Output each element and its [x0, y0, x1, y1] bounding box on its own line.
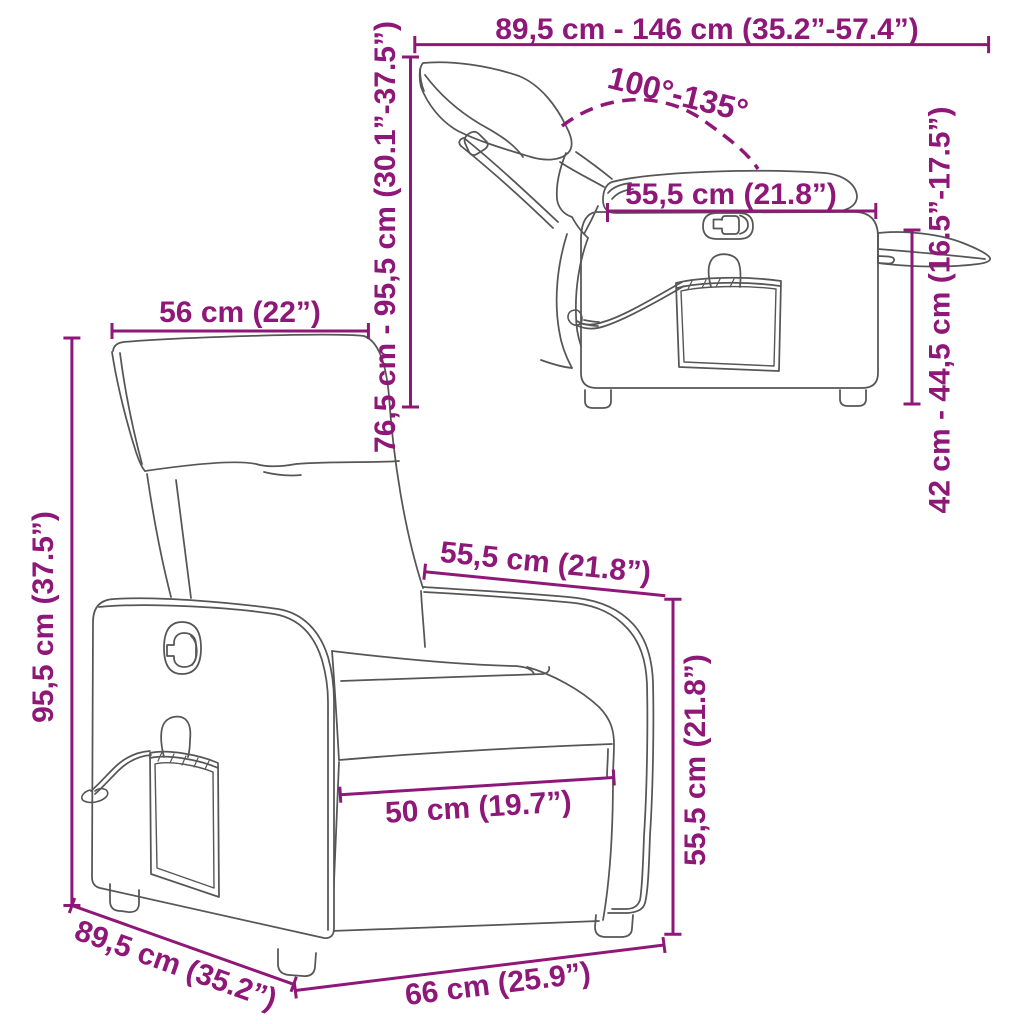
svg-text:95,5 cm (37.5”): 95,5 cm (37.5”)	[27, 511, 60, 723]
svg-text:42 cm - 44,5 cm (16.5”-17.5”): 42 cm - 44,5 cm (16.5”-17.5”)	[924, 107, 957, 514]
svg-text:56 cm (22”): 56 cm (22”)	[159, 296, 321, 329]
svg-text:55,5 cm (21.8”): 55,5 cm (21.8”)	[625, 178, 837, 211]
svg-text:55,5 cm (21.8”): 55,5 cm (21.8”)	[679, 654, 712, 866]
svg-text:89,5 cm - 146 cm (35.2”-57.4”): 89,5 cm - 146 cm (35.2”-57.4”)	[495, 13, 919, 46]
svg-text:76,5 cm - 95,5 cm (30.1”-37.5”: 76,5 cm - 95,5 cm (30.1”-37.5”)	[369, 21, 402, 453]
